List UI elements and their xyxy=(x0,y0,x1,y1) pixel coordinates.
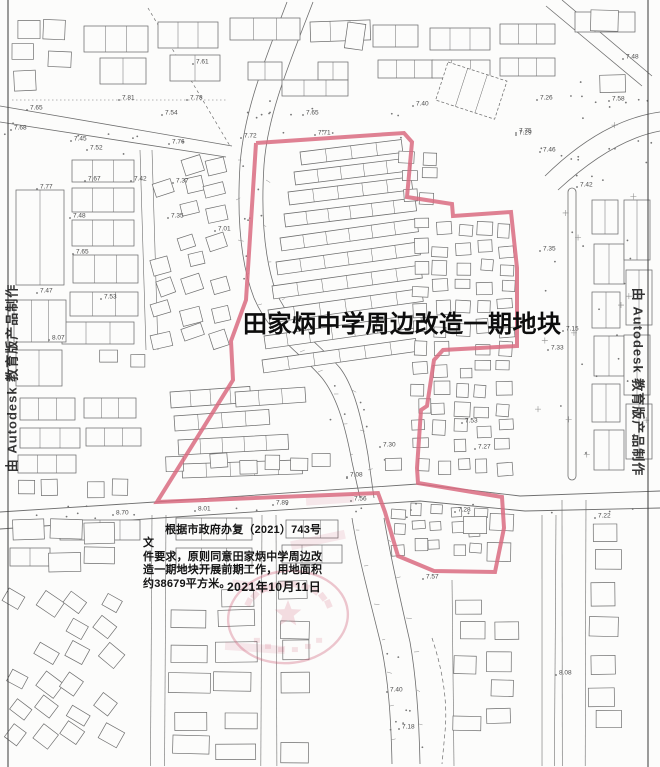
approval-note-line: 件要求，原则同意田家炳中学周边改 xyxy=(143,551,329,564)
autodesk-watermark-right: 由 Autodesk 教育版产品制作 xyxy=(630,288,649,476)
approval-note-line: 造一期地块开展前期工作，用地面积 xyxy=(143,564,329,577)
plot-title: 田家炳中学周边改造一期地块 xyxy=(243,304,562,339)
autodesk-watermark-left: 由 Autodesk 教育版产品制作 xyxy=(2,284,21,472)
map-canvas xyxy=(0,0,660,767)
approval-date: 2021年10月11日 xyxy=(227,578,321,595)
approval-note-line: 根据市政府办复（2021）743号文 xyxy=(143,524,329,551)
cad-map-sheet: 7.617.657.817.547.787.687.457.527.767.72… xyxy=(0,0,660,767)
